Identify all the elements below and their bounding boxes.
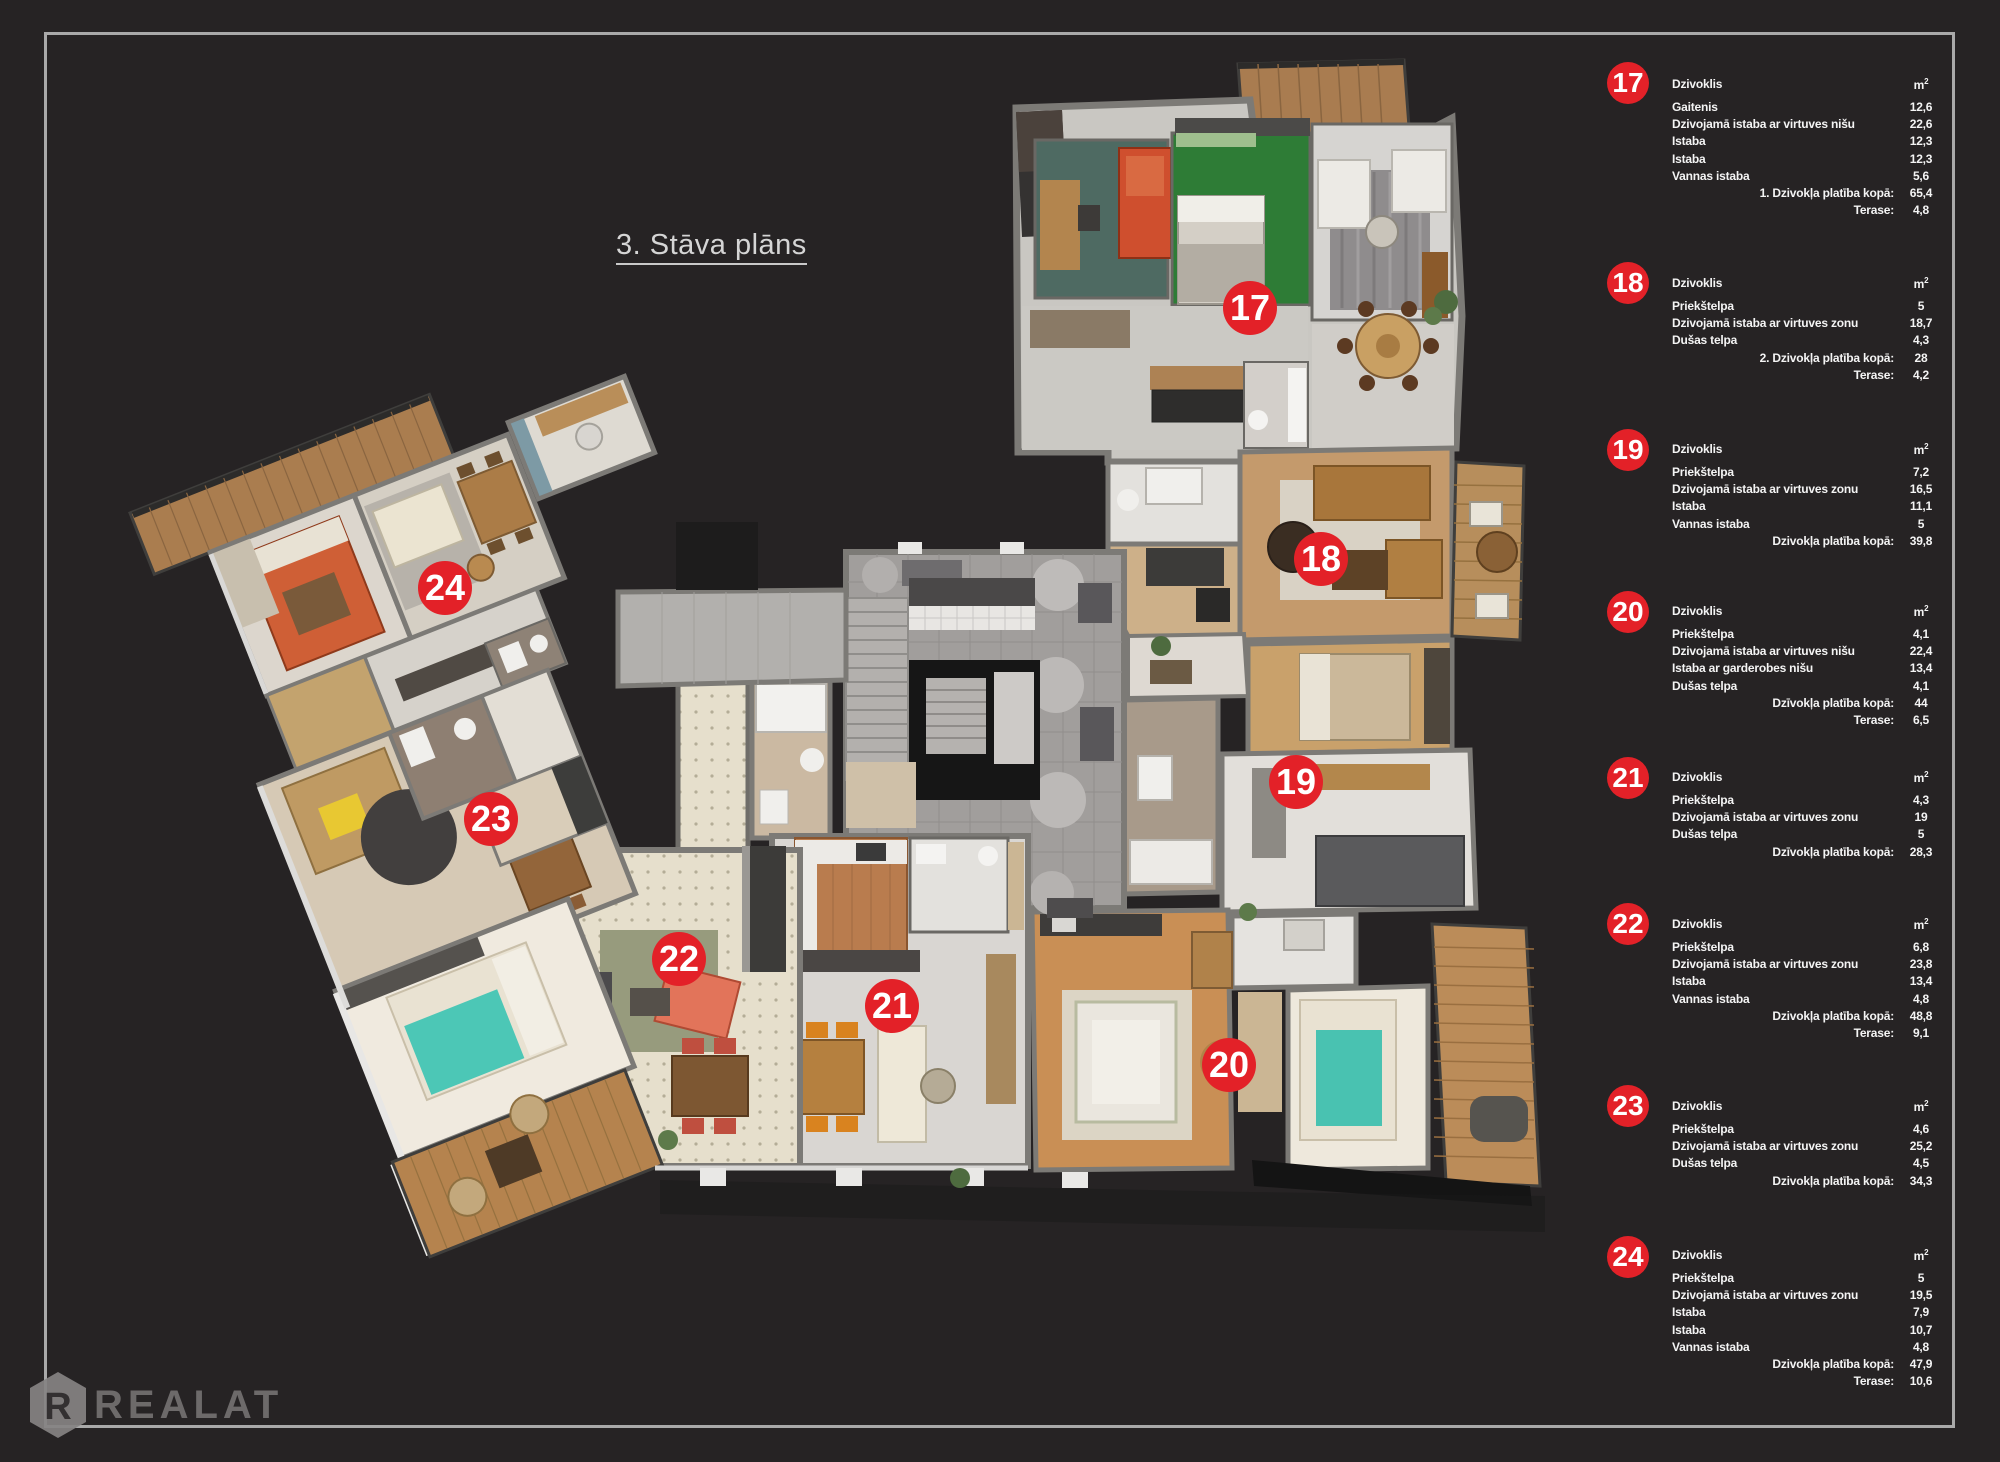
svg-text:REALAT: REALAT — [94, 1383, 283, 1427]
svg-text:21: 21 — [872, 985, 912, 1026]
svg-text:R: R — [44, 1386, 71, 1428]
svg-text:19: 19 — [1276, 761, 1316, 802]
svg-text:24: 24 — [425, 567, 465, 608]
svg-text:20: 20 — [1209, 1044, 1249, 1085]
svg-text:17: 17 — [1230, 287, 1270, 328]
svg-text:18: 18 — [1301, 538, 1341, 579]
svg-text:23: 23 — [471, 798, 511, 839]
svg-text:22: 22 — [659, 938, 699, 979]
